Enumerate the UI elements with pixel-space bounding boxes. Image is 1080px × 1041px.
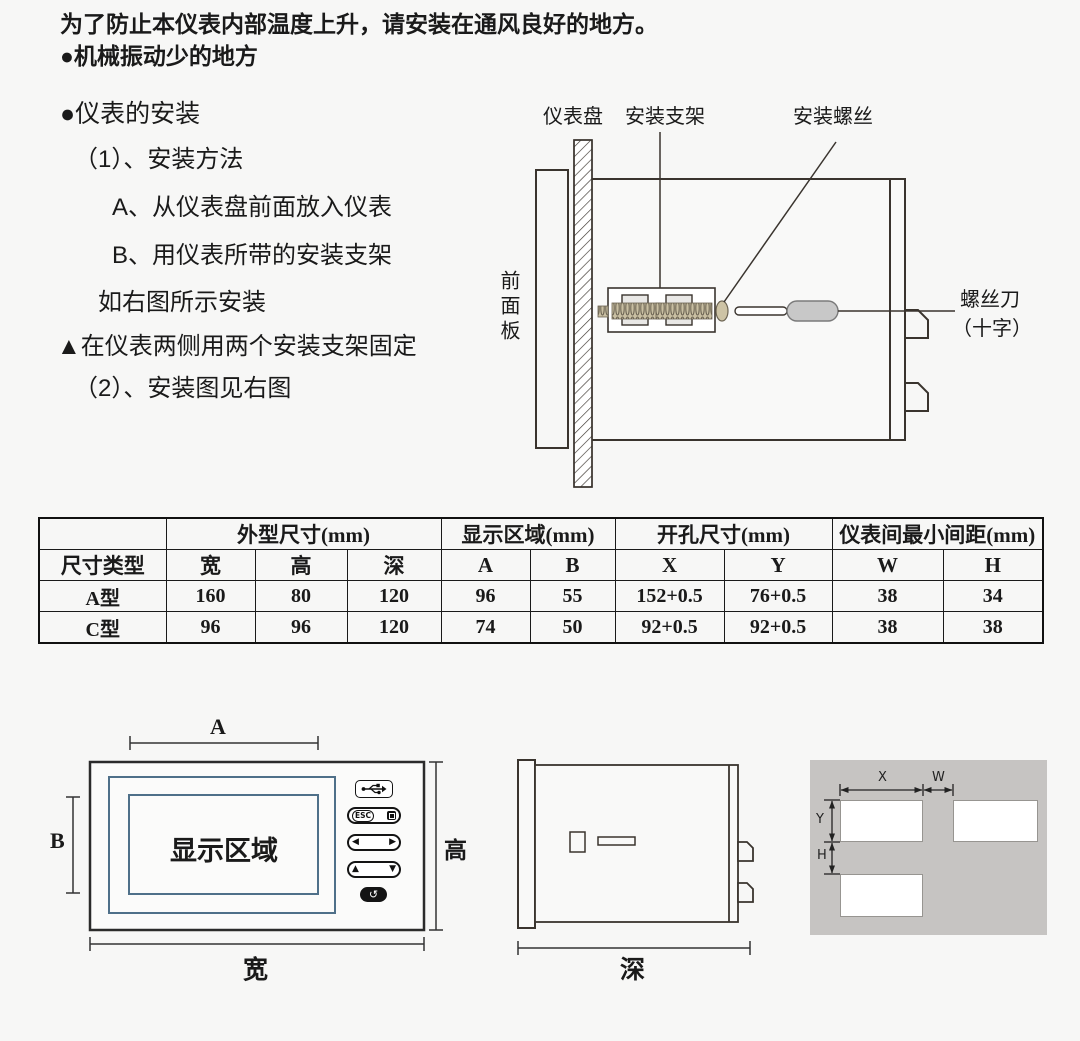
panel-label: 仪表盘 xyxy=(543,100,603,129)
front-dim-a-label: A xyxy=(210,714,226,740)
front-panel-shape xyxy=(536,170,568,448)
esc-menu-button: ESC xyxy=(347,807,401,824)
side-view-diagram xyxy=(505,745,765,975)
cutout-dimension-lines xyxy=(810,760,1047,935)
cutout-dim-x-label: X xyxy=(878,770,887,785)
bracket-label: 安装支架 xyxy=(625,100,705,129)
install-step-1: （1）、安装方法 xyxy=(74,139,243,174)
screwdriver-label-line2: （十字） xyxy=(952,312,1032,341)
panel-cutout-diagram: X W Y H xyxy=(810,760,1047,935)
table-row-c-type: C型 96 96 120 74 50 92+0.5 92+0.5 38 38 xyxy=(39,612,1043,644)
up-arrow-icon: ▲ xyxy=(352,865,359,874)
front-dim-b-label: B xyxy=(50,828,65,854)
mounting-bracket xyxy=(598,288,728,332)
side-hook-lower xyxy=(738,883,753,902)
front-dim-width-label: 宽 xyxy=(243,950,268,986)
usb-icon xyxy=(361,783,387,795)
dim-w-line xyxy=(924,784,953,796)
hook-tab-lower xyxy=(905,383,928,411)
panel-wall-hatched xyxy=(574,140,592,487)
esc-button-label: ESC xyxy=(352,810,374,822)
intro-line-2: ●机械振动少的地方 xyxy=(60,37,258,71)
intro-line-1: 为了防止本仪表内部温度上升，请安装在通风良好的地方。 xyxy=(60,5,658,39)
cutout-dim-y-label: Y xyxy=(816,812,824,827)
hook-tab-upper xyxy=(905,310,928,338)
dimensions-table: 外型尺寸(mm) 显示区域(mm) 开孔尺寸(mm) 仪表间最小间距(mm) 尺… xyxy=(38,517,1044,644)
install-step-1a: A、从仪表盘前面放入仪表 xyxy=(112,187,392,222)
install-step-1b: B、用仪表所带的安装支架 xyxy=(112,235,392,270)
cutout-dim-w-label: W xyxy=(932,770,945,785)
dim-x-line xyxy=(840,784,923,796)
side-view-bezel xyxy=(518,760,535,928)
screwdriver-label-line1: 螺丝刀 xyxy=(960,283,1020,312)
display-area-label: 显示区域 xyxy=(158,829,290,868)
dim-width-line xyxy=(90,937,424,951)
dim-b-line xyxy=(66,797,80,893)
enter-button: ↺ xyxy=(360,887,387,902)
up-down-buttons: ▲ ▼ xyxy=(347,861,401,878)
down-arrow-icon: ▼ xyxy=(389,865,396,874)
right-arrow-icon: ▶ xyxy=(389,838,396,847)
table-row-a-type: A型 160 80 120 96 55 152+0.5 76+0.5 38 34 xyxy=(39,581,1043,612)
usb-port-button xyxy=(355,780,393,798)
left-right-buttons: ◀ ▶ xyxy=(347,834,401,851)
install-title: ●仪表的安装 xyxy=(60,94,200,130)
mounting-screw-head xyxy=(716,301,728,321)
enter-arrow-icon: ↺ xyxy=(369,889,378,900)
group-display: 显示区域(mm) xyxy=(441,518,615,550)
left-arrow-icon: ◀ xyxy=(352,838,359,847)
install-step-2: （2）、安装图见右图 xyxy=(74,368,291,403)
table-empty-cell xyxy=(39,518,166,550)
group-cutout: 开孔尺寸(mm) xyxy=(615,518,832,550)
dim-height-line xyxy=(429,762,443,930)
group-spacing: 仪表间最小间距(mm) xyxy=(832,518,1043,550)
manual-page: 为了防止本仪表内部温度上升，请安装在通风良好的地方。 ●机械振动少的地方 ●仪表… xyxy=(0,0,1080,1041)
install-note: ▲在仪表两侧用两个安装支架固定 xyxy=(57,326,417,361)
front-panel-label: 前面板 xyxy=(494,270,523,345)
cutout-dim-h-label: H xyxy=(817,848,827,863)
side-view-body xyxy=(535,765,738,922)
side-hook-upper xyxy=(738,842,753,861)
dim-y-line xyxy=(824,800,840,842)
side-dim-depth-label: 深 xyxy=(620,950,645,986)
table-subheader-row: 尺寸类型 宽 高 深 A B X Y W H xyxy=(39,550,1043,581)
screw-label: 安装螺丝 xyxy=(793,100,873,129)
front-dim-height-label: 高 xyxy=(444,831,467,865)
table-group-header-row: 外型尺寸(mm) 显示区域(mm) 开孔尺寸(mm) 仪表间最小间距(mm) xyxy=(39,518,1043,550)
group-outline: 外型尺寸(mm) xyxy=(166,518,441,550)
install-step-1c: 如右图所示安装 xyxy=(98,282,266,317)
menu-cube-icon xyxy=(387,811,396,820)
